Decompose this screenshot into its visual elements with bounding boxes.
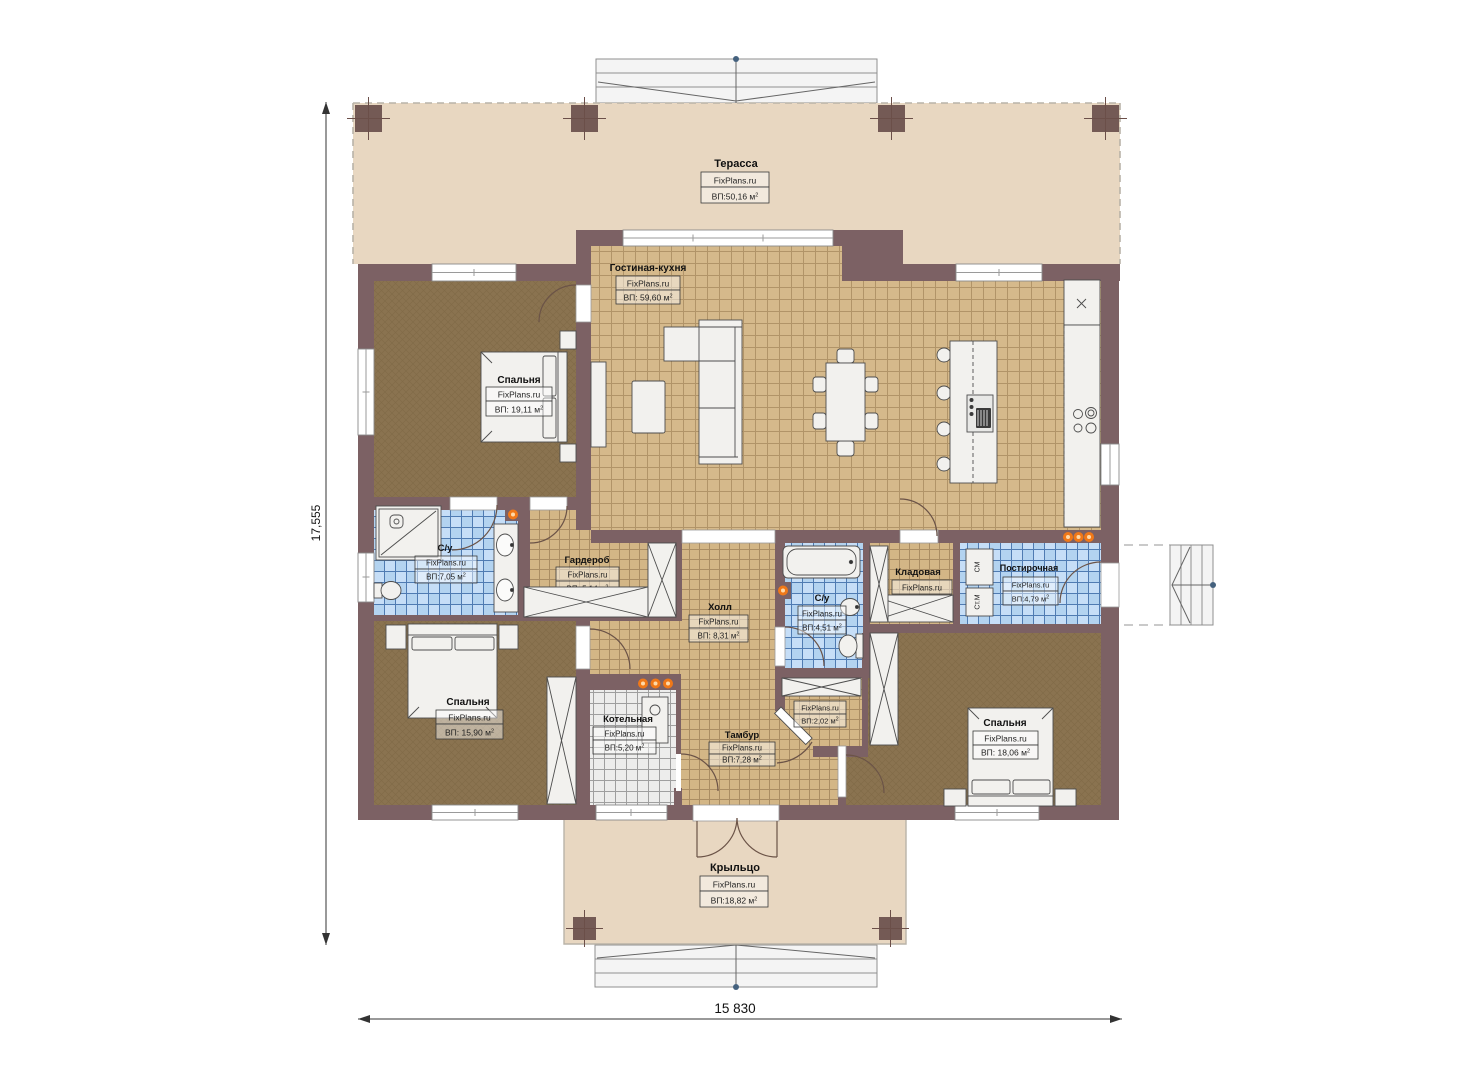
svg-text:Гардероб: Гардероб bbox=[565, 555, 610, 566]
svg-text:Холл: Холл bbox=[708, 602, 732, 613]
svg-text:ВП: 59,60 м2: ВП: 59,60 м2 bbox=[623, 293, 672, 303]
svg-text:ВП: 19,11 м2: ВП: 19,11 м2 bbox=[495, 405, 543, 415]
svg-text:Спальня: Спальня bbox=[497, 375, 540, 386]
svg-text:С/у: С/у bbox=[438, 543, 454, 554]
svg-text:СМ: СМ bbox=[975, 561, 982, 572]
svg-text:FixPlans.ru: FixPlans.ru bbox=[714, 176, 757, 186]
svg-text:Постирочная: Постирочная bbox=[1000, 563, 1058, 573]
svg-text:ВП: 18,06 м2: ВП: 18,06 м2 bbox=[981, 748, 1030, 758]
svg-text:ВП: 8,31 м2: ВП: 8,31 м2 bbox=[698, 632, 740, 641]
svg-text:FixPlans.ru: FixPlans.ru bbox=[627, 279, 670, 289]
svg-text:FixPlans.ru: FixPlans.ru bbox=[426, 559, 466, 568]
svg-text:ВП:50,16 м2: ВП:50,16 м2 bbox=[712, 192, 759, 202]
svg-text:FixPlans.ru: FixPlans.ru bbox=[902, 584, 942, 593]
svg-text:FixPlans.ru: FixPlans.ru bbox=[801, 704, 839, 713]
svg-text:ВП:4,51 м2: ВП:4,51 м2 bbox=[802, 624, 842, 633]
svg-text:Спальня: Спальня bbox=[983, 718, 1026, 729]
svg-text:Тамбур: Тамбур bbox=[725, 730, 760, 741]
svg-text:Терасса: Терасса bbox=[714, 158, 758, 170]
svg-text:ВП: 15,90 м2: ВП: 15,90 м2 bbox=[445, 728, 494, 738]
svg-text:FixPlans.ru: FixPlans.ru bbox=[713, 880, 756, 890]
svg-text:Котельная: Котельная bbox=[603, 714, 653, 725]
svg-text:ВП:7,28 м2: ВП:7,28 м2 bbox=[722, 756, 762, 765]
svg-text:FixPlans.ru: FixPlans.ru bbox=[1012, 581, 1050, 590]
svg-text:Ст.М: Ст.М bbox=[975, 594, 982, 609]
svg-text:FixPlans.ru: FixPlans.ru bbox=[498, 390, 541, 400]
svg-text:Гостиная-кухня: Гостиная-кухня bbox=[610, 263, 687, 274]
svg-text:ВП:18,82 м2: ВП:18,82 м2 bbox=[711, 896, 758, 906]
svg-text:ВП:7,05 м2: ВП:7,05 м2 bbox=[426, 573, 466, 582]
svg-text:FixPlans.ru: FixPlans.ru bbox=[567, 571, 607, 580]
svg-text:ВП:5,20 м2: ВП:5,20 м2 bbox=[605, 744, 645, 753]
svg-text:17,555: 17,555 bbox=[309, 504, 323, 541]
svg-text:FixPlans.ru: FixPlans.ru bbox=[802, 610, 842, 619]
svg-text:FixPlans.ru: FixPlans.ru bbox=[448, 713, 491, 723]
svg-text:FixPlans.ru: FixPlans.ru bbox=[604, 730, 644, 739]
svg-text:FixPlans.ru: FixPlans.ru bbox=[984, 734, 1027, 744]
svg-text:15 830: 15 830 bbox=[714, 1001, 755, 1016]
svg-text:Крыльцо: Крыльцо bbox=[710, 862, 760, 874]
svg-text:Спальня: Спальня bbox=[446, 697, 489, 708]
svg-text:С/у: С/у bbox=[815, 593, 831, 604]
svg-text:ВП:2,02 м2: ВП:2,02 м2 bbox=[801, 717, 838, 726]
svg-text:FixPlans.ru: FixPlans.ru bbox=[698, 618, 738, 627]
svg-text:ВП:4,79 м2: ВП:4,79 м2 bbox=[1012, 595, 1049, 604]
svg-text:FixPlans.ru: FixPlans.ru bbox=[722, 744, 762, 753]
svg-text:Кладовая: Кладовая bbox=[895, 567, 941, 578]
